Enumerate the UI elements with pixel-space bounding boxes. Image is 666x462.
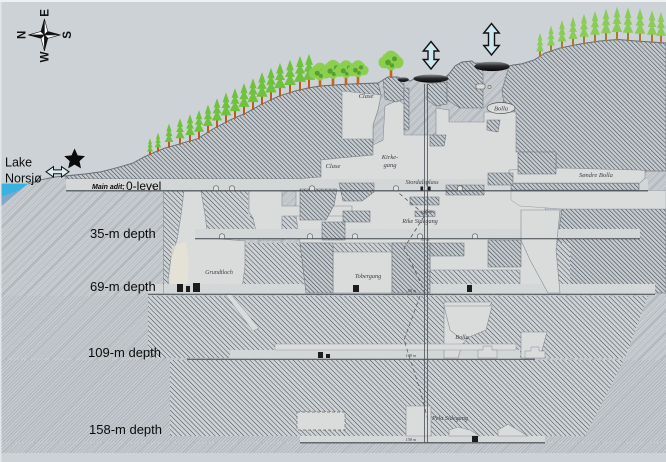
svg-text:W: W: [40, 51, 52, 62]
svg-text:109-m depth: 109-m depth: [88, 345, 161, 360]
svg-text:69-m depth: 69-m depth: [90, 279, 156, 294]
svg-text:gang: gang: [384, 162, 398, 169]
svg-text:Søndre Bolla: Søndre Bolla: [579, 172, 613, 179]
svg-text:Clase: Clase: [326, 163, 341, 170]
svg-text:35 m: 35 m: [421, 237, 431, 242]
svg-text:Lake: Lake: [5, 156, 32, 170]
svg-text:Stordalsplass: Stordalsplass: [405, 179, 439, 186]
svg-text:N: N: [16, 31, 28, 39]
svg-text:0-level: 0-level: [126, 179, 161, 193]
svg-text:158 m: 158 m: [406, 437, 416, 442]
svg-text:Main adit;: Main adit;: [92, 184, 125, 191]
svg-text:Rike Sidegang: Rike Sidegang: [401, 218, 438, 225]
svg-text:Bolla: Bolla: [455, 334, 468, 341]
svg-text:Clase: Clase: [359, 93, 374, 100]
svg-text:Norsjø: Norsjø: [5, 172, 42, 186]
svg-text:69 m: 69 m: [408, 288, 416, 293]
svg-text:Kirke-: Kirke-: [381, 154, 399, 161]
svg-text:Grundtloch: Grundtloch: [205, 270, 233, 276]
svg-text:E: E: [40, 9, 52, 17]
svg-text:Tobergang: Tobergang: [355, 273, 381, 280]
svg-text:109 m: 109 m: [406, 353, 416, 358]
svg-text:Pela Sidegang: Pela Sidegang: [431, 415, 468, 422]
svg-text:S: S: [62, 31, 74, 39]
svg-text:35-m depth: 35-m depth: [90, 226, 156, 241]
svg-text:158-m depth: 158-m depth: [89, 422, 162, 437]
svg-text:Bolla: Bolla: [494, 106, 508, 113]
svg-text:Rim: Rim: [423, 209, 433, 215]
